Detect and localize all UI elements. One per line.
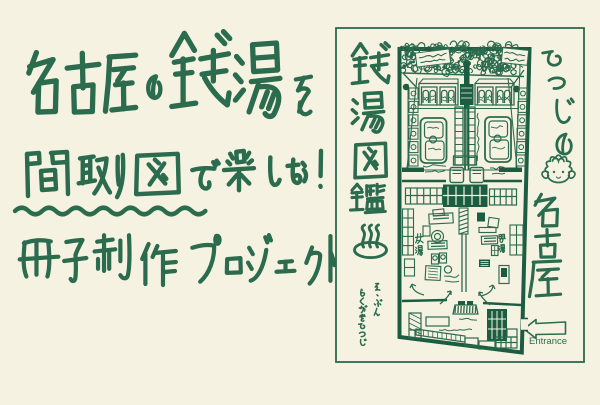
svg-text:Entrance: Entrance	[529, 336, 567, 347]
